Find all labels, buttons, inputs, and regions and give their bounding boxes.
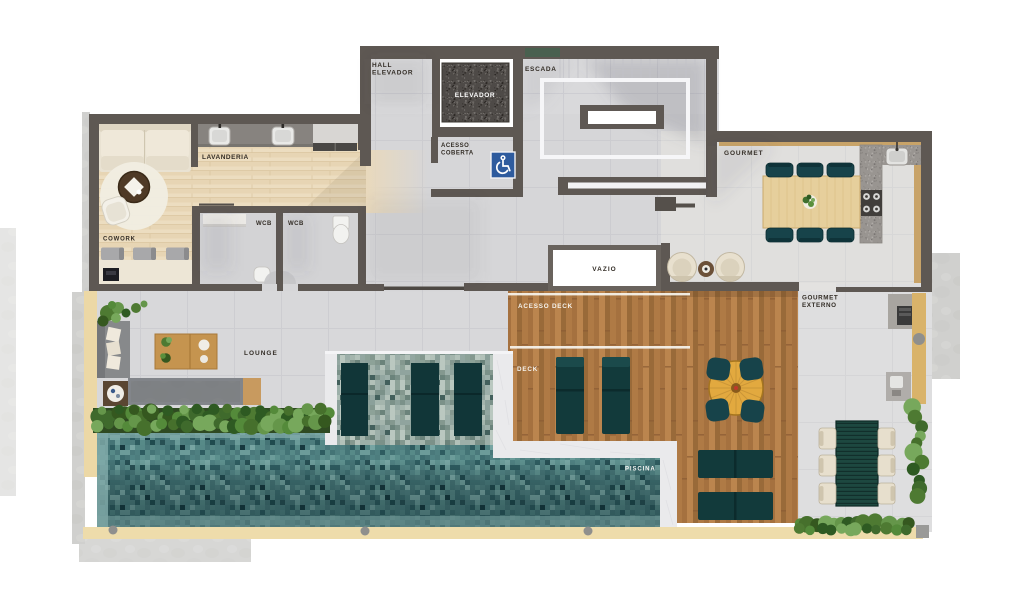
svg-text:ELEVADOR: ELEVADOR: [372, 70, 413, 77]
svg-text:EXTERNO: EXTERNO: [802, 302, 837, 309]
svg-text:ELEVADOR: ELEVADOR: [455, 92, 495, 99]
svg-text:ACESSO DECK: ACESSO DECK: [518, 303, 573, 310]
svg-text:ESCADA: ESCADA: [525, 66, 557, 73]
svg-text:PISCINA: PISCINA: [625, 467, 656, 473]
svg-text:COWORK: COWORK: [103, 237, 136, 243]
svg-text:LAVANDERIA: LAVANDERIA: [202, 154, 249, 161]
svg-text:DECK: DECK: [517, 366, 538, 373]
svg-text:LOUNGE: LOUNGE: [244, 350, 278, 357]
svg-text:ACESSO: ACESSO: [441, 143, 469, 149]
svg-text:GOURMET: GOURMET: [724, 150, 764, 157]
svg-text:GOURMET: GOURMET: [802, 295, 838, 302]
svg-text:COBERTA: COBERTA: [441, 151, 474, 157]
svg-text:VAZIO: VAZIO: [592, 266, 616, 273]
svg-text:WCB: WCB: [256, 221, 272, 227]
svg-text:WCB: WCB: [288, 221, 304, 227]
svg-text:HALL: HALL: [372, 62, 392, 69]
